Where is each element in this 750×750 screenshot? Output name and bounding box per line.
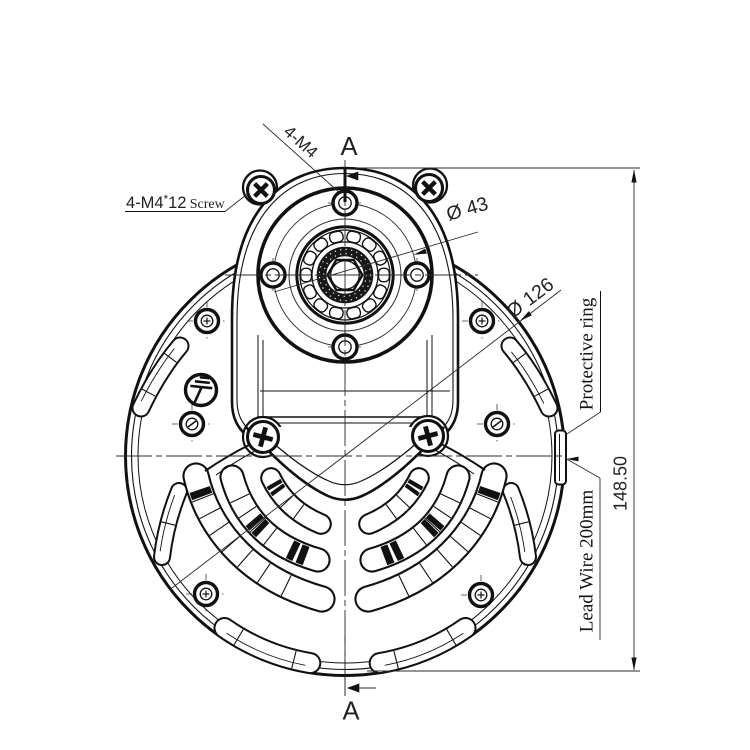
svg-text:A: A xyxy=(342,698,359,726)
svg-text:A: A xyxy=(340,133,357,161)
svg-text:Lead Wire 200mm: Lead Wire 200mm xyxy=(577,490,598,633)
svg-text:148.50: 148.50 xyxy=(611,456,631,511)
svg-text:4-M4*12 Screw: 4-M4*12 Screw xyxy=(126,194,226,212)
svg-text:Protective ring: Protective ring xyxy=(577,297,598,410)
